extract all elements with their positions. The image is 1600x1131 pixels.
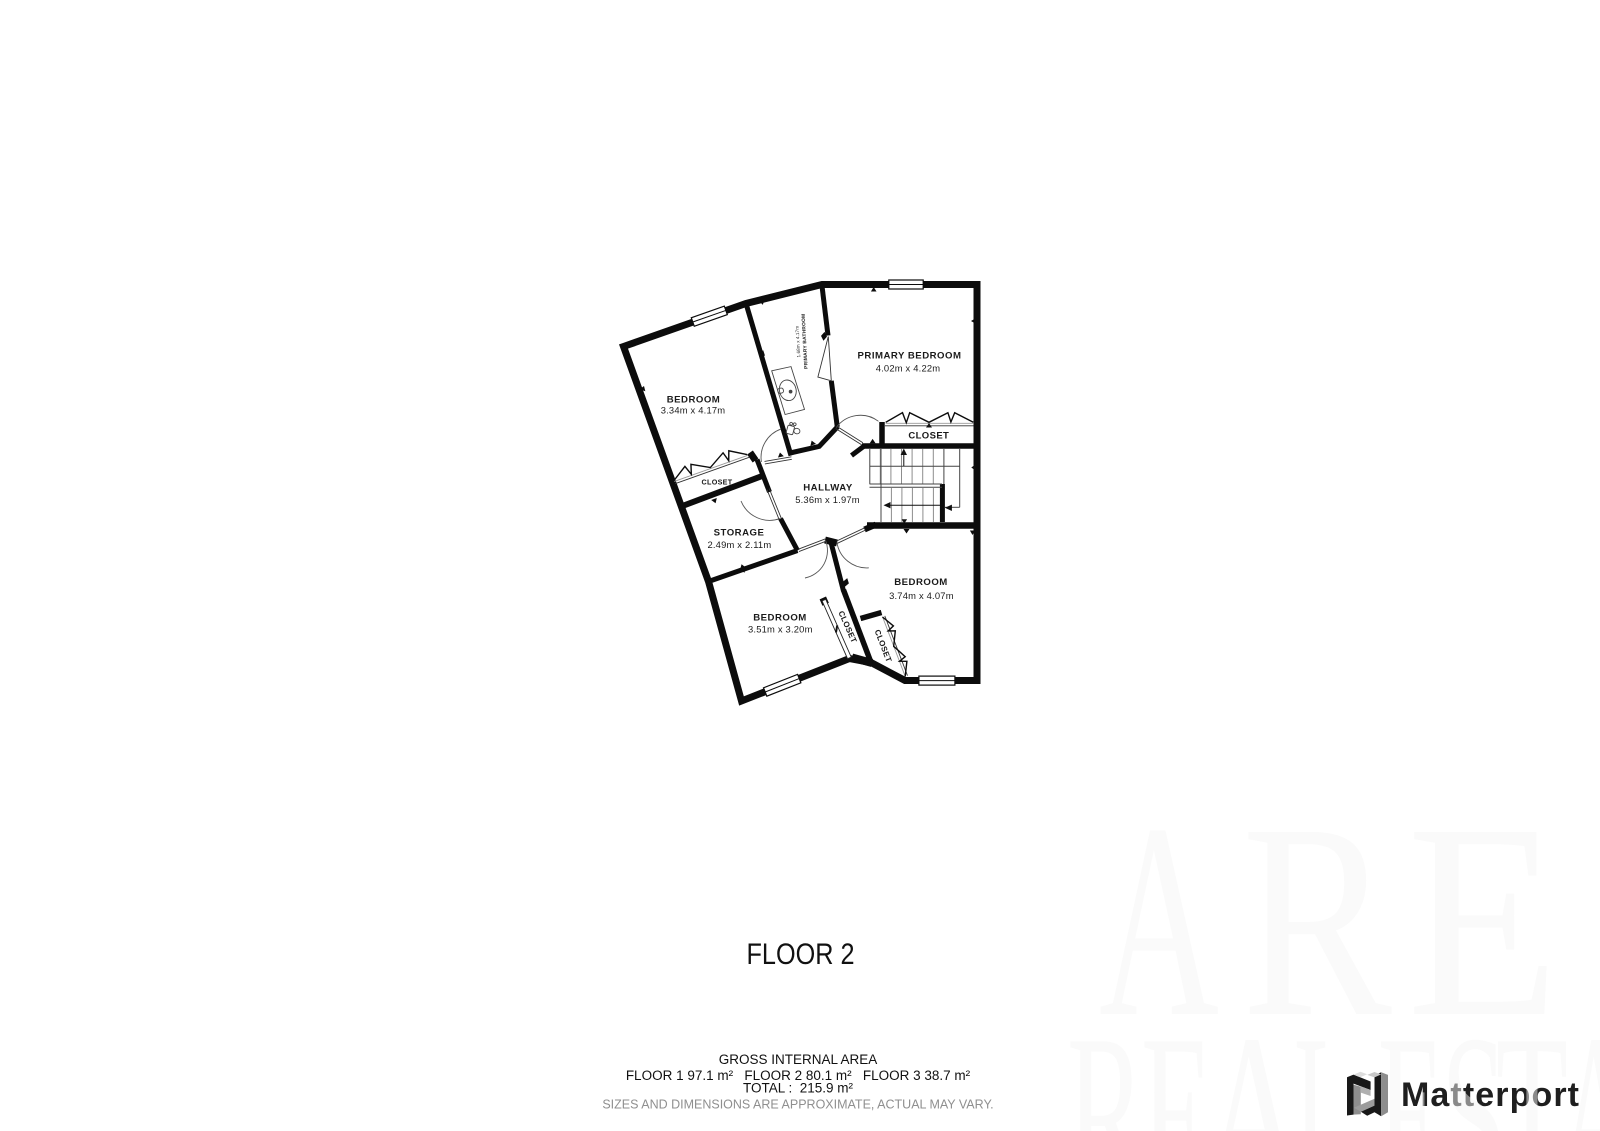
svg-text:STORAGE: STORAGE bbox=[714, 528, 765, 539]
svg-text:BEDROOM: BEDROOM bbox=[753, 613, 807, 624]
svg-text:L: L bbox=[1294, 987, 1356, 1131]
svg-text:3.51m x 3.20m: 3.51m x 3.20m bbox=[748, 624, 813, 635]
svg-text:TOTAL : 215.9 m²: TOTAL : 215.9 m² bbox=[743, 1081, 854, 1096]
svg-text:SIZES AND DIMENSIONS ARE APPRO: SIZES AND DIMENSIONS ARE APPROXIMATE, AC… bbox=[602, 1098, 993, 1112]
svg-text:R: R bbox=[1067, 987, 1145, 1131]
svg-text:PRIMARY BEDROOM: PRIMARY BEDROOM bbox=[858, 351, 962, 362]
svg-text:3.74m x 4.07m: 3.74m x 4.07m bbox=[889, 590, 954, 601]
svg-text:FLOOR 2: FLOOR 2 bbox=[747, 938, 855, 971]
svg-text:A: A bbox=[1558, 987, 1600, 1131]
svg-text:3.34m x 4.17m: 3.34m x 4.17m bbox=[661, 405, 726, 416]
svg-text:4.02m x 4.22m: 4.02m x 4.22m bbox=[876, 363, 941, 374]
svg-text:E: E bbox=[1378, 987, 1444, 1131]
svg-text:A: A bbox=[1203, 987, 1303, 1131]
svg-text:BEDROOM: BEDROOM bbox=[894, 577, 948, 588]
svg-text:CLOSET: CLOSET bbox=[702, 477, 733, 486]
svg-text:2.49m x 2.11m: 2.49m x 2.11m bbox=[707, 539, 771, 550]
svg-text:5.36m x 1.97m: 5.36m x 1.97m bbox=[795, 494, 860, 505]
svg-text:HALLWAY: HALLWAY bbox=[803, 483, 853, 494]
svg-text:GROSS INTERNAL AREA: GROSS INTERNAL AREA bbox=[719, 1052, 878, 1067]
svg-text:CLOSET: CLOSET bbox=[908, 431, 949, 442]
